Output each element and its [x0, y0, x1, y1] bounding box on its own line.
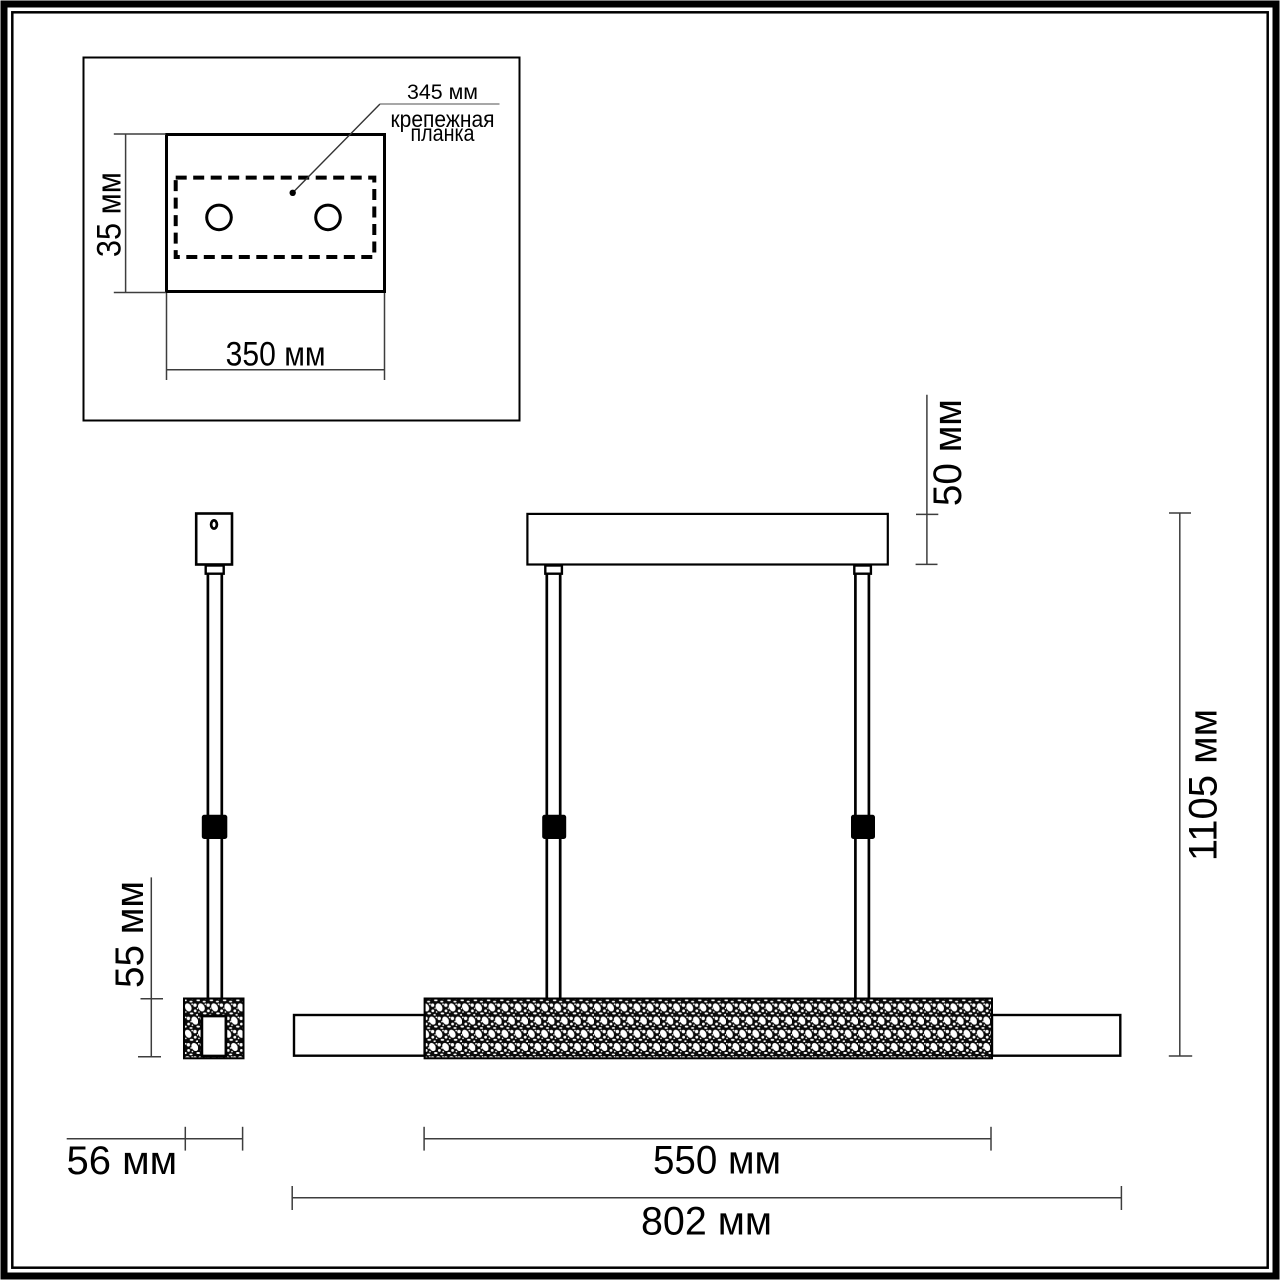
svg-text:35 мм: 35 мм: [91, 172, 129, 257]
svg-text:55 мм: 55 мм: [108, 881, 152, 988]
svg-text:56 мм: 56 мм: [66, 1139, 177, 1183]
svg-text:345 мм: 345 мм: [407, 81, 478, 104]
svg-text:50 мм: 50 мм: [926, 399, 970, 506]
svg-text:550 мм: 550 мм: [653, 1139, 781, 1183]
svg-text:1105 мм: 1105 мм: [1182, 709, 1226, 861]
svg-text:350 мм: 350 мм: [226, 336, 326, 374]
svg-text:планка: планка: [411, 120, 475, 146]
svg-text:802 мм: 802 мм: [641, 1200, 772, 1244]
